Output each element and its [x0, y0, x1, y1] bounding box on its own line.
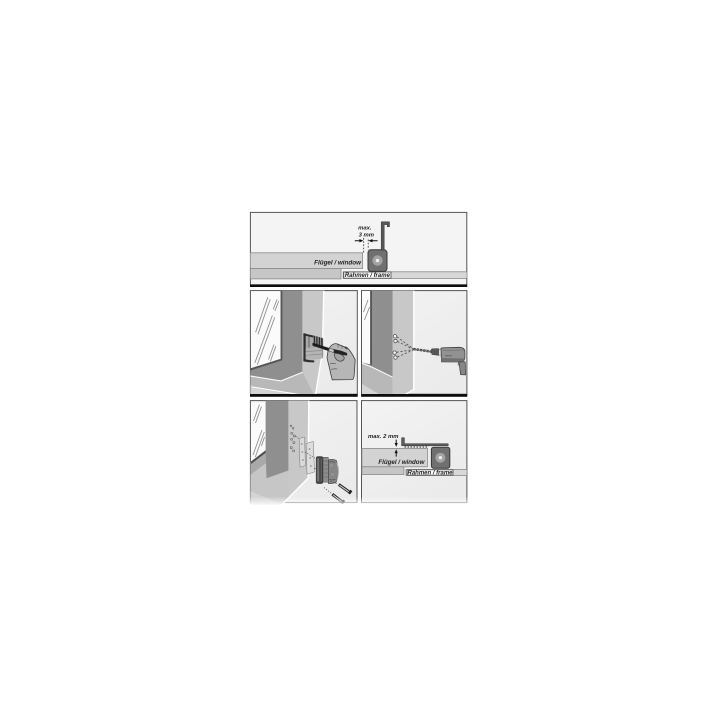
svg-text:Flügel / window: Flügel / window [378, 459, 425, 466]
svg-text:3 mm: 3 mm [359, 233, 374, 239]
svg-text:Flügel / window: Flügel / window [314, 259, 362, 266]
svg-text:max. 2 mm: max. 2 mm [368, 434, 398, 440]
svg-text:max.: max. [358, 226, 372, 232]
svg-text:Rahmen / frame: Rahmen / frame [345, 273, 391, 279]
svg-text:Rahmen / frame: Rahmen / frame [407, 470, 453, 476]
